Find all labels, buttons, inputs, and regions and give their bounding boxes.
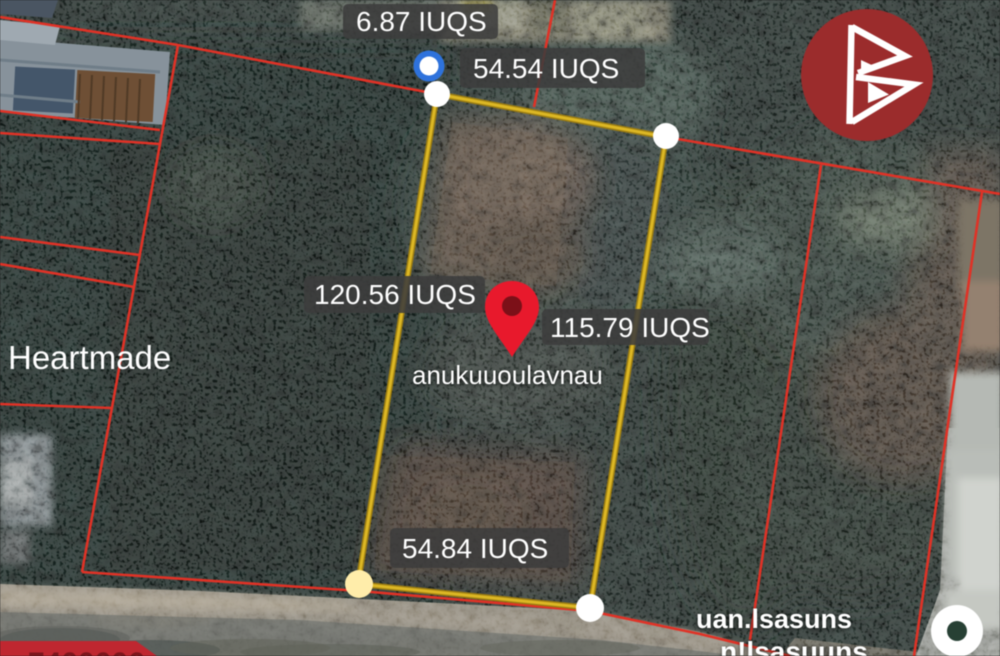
- svg-text:120.56 IUQS: 120.56 IUQS: [314, 279, 476, 310]
- svg-text:7400006: 7400006: [28, 647, 145, 656]
- svg-text:Heartmade: Heartmade: [8, 339, 171, 376]
- svg-text:115.79 IUQS: 115.79 IUQS: [550, 312, 710, 343]
- svg-text:uan.lsasuns: uan.lsasuns: [696, 604, 852, 634]
- svg-text:n!lsasuuns: n!lsasuuns: [720, 636, 868, 656]
- svg-text:anukuuoulavnau: anukuuoulavnau: [412, 360, 603, 390]
- svg-text:54.84 IUQS: 54.84 IUQS: [402, 533, 548, 564]
- svg-text:6.87 IUQS: 6.87 IUQS: [356, 6, 487, 37]
- svg-text:54.54 IUQS: 54.54 IUQS: [473, 53, 619, 84]
